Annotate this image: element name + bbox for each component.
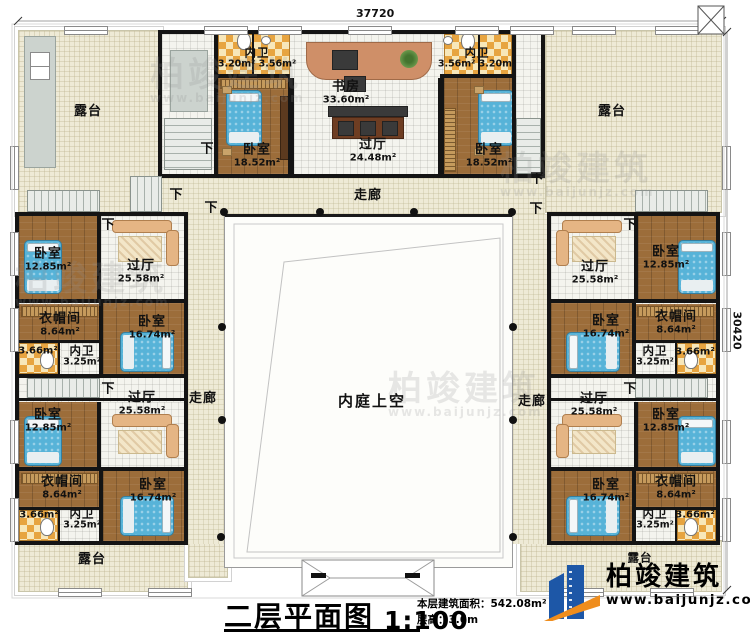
- room-label-terrace-top-left: 露台: [74, 105, 102, 119]
- window: [258, 26, 302, 35]
- room-area: 3.25m²: [636, 357, 674, 367]
- room-area: 25.58m²: [119, 406, 165, 417]
- room-area: 3.66m²: [19, 510, 58, 521]
- room-label-terrace-top-right: 露台: [598, 105, 626, 119]
- logo-tower-shape: [549, 573, 564, 619]
- room-area: 12.85m²: [25, 262, 71, 273]
- column-dot: [509, 533, 517, 541]
- nightstand: [222, 148, 232, 156]
- room-label-lw-lower-bath2: 3.66m²: [19, 510, 58, 521]
- room-label-study: 书房33.60m²: [323, 80, 369, 105]
- column-dot: [218, 323, 226, 331]
- room-name: 露台: [598, 105, 626, 119]
- window: [10, 498, 19, 542]
- computer-icon: [332, 50, 358, 70]
- bed-sheet: [481, 132, 511, 143]
- room-area: 3.66m²: [675, 347, 714, 358]
- stairs-down-label: 下: [623, 214, 636, 233]
- column-dot: [509, 323, 517, 331]
- room-name: 衣帽间: [655, 475, 697, 489]
- room-label-lw-lower-bedroom1: 卧室12.85m²: [25, 408, 71, 433]
- brand-logo: 柏竣建筑 www.baijunjz.com: [544, 563, 750, 623]
- room-label-rw-upper-hall: 过厅25.58m²: [572, 260, 618, 285]
- room-label-corridor-top: 走廊: [354, 189, 382, 203]
- room-label-corridor-left: 走廊: [189, 392, 217, 406]
- room-name: 书房: [323, 80, 369, 94]
- terrace-area: [545, 30, 722, 213]
- room-label-rw-lower-bath2: 3.66m²: [675, 510, 714, 521]
- window: [722, 420, 731, 464]
- wall: [58, 343, 60, 374]
- room-label-lw-upper-closet: 衣帽间8.64m²: [39, 312, 81, 337]
- stairs-down-label: 下: [101, 378, 114, 397]
- room-area: 8.64m²: [655, 490, 697, 501]
- room-name: 卧室: [643, 245, 689, 259]
- room-name: 卧室: [643, 408, 689, 422]
- room-area: 18.52m²: [234, 158, 280, 169]
- room-name: 露台: [74, 105, 102, 119]
- window: [572, 26, 616, 35]
- room-name: 卧室: [129, 315, 175, 329]
- stairs: [516, 118, 541, 174]
- bed-pillow: [162, 499, 171, 533]
- room-name: 卧室: [130, 478, 176, 492]
- room-label-lw-upper-bath: 内卫3.25m²: [63, 344, 101, 367]
- wall: [288, 78, 294, 174]
- room-name: 过厅: [119, 391, 165, 405]
- stairs: [635, 190, 708, 212]
- room-area: 16.74m²: [583, 329, 629, 340]
- room-label-rw-lower-closet: 衣帽间8.64m²: [655, 475, 697, 500]
- room-name: 走廊: [354, 189, 382, 203]
- column-dot: [217, 533, 225, 541]
- room-label-rw-lower-hall: 过厅25.58m²: [571, 392, 617, 417]
- room-label-lw-upper-bedroom1: 卧室12.85m²: [25, 247, 71, 272]
- bed-sheet: [681, 452, 713, 463]
- cabinet-seat: [360, 121, 376, 136]
- room-area: 25.58m²: [118, 274, 164, 285]
- nightstand: [474, 86, 484, 94]
- bed-sheet: [229, 132, 259, 143]
- room-label-rw-upper-closet: 衣帽间8.64m²: [655, 310, 697, 335]
- toilet: [684, 518, 698, 536]
- sofa: [112, 220, 172, 233]
- sink: [443, 36, 453, 45]
- room-name: 过厅: [571, 392, 617, 406]
- column-dot: [218, 416, 226, 424]
- room-label-lw-upper-bath2: 3.66m²: [18, 346, 57, 357]
- wall: [97, 402, 101, 467]
- dimension-top: 37720: [356, 7, 394, 20]
- floor-height-text: 层高：3.6m: [417, 613, 547, 629]
- stairs-down-label: 下: [169, 184, 182, 203]
- stairs: [130, 176, 162, 212]
- room-name: 内卫: [438, 46, 516, 59]
- plan-meta: 本层建筑面积：542.08m² 层高：3.6m: [417, 597, 547, 629]
- sofa: [556, 424, 569, 458]
- brand-url: www.baijunjz.com: [606, 592, 750, 608]
- stairs: [635, 378, 708, 398]
- room-name: 卧室: [25, 247, 71, 261]
- room-label-rw-upper-bath: 内卫3.25m²: [636, 344, 674, 367]
- room-label-bath-top-left: 内卫3.20m² 3.56m²: [218, 46, 296, 69]
- room-label-lw-lower-closet: 衣帽间8.64m²: [41, 475, 83, 500]
- room-area: 16.74m²: [129, 330, 175, 341]
- plant-icon: [400, 50, 418, 68]
- stairs-down-label: 下: [204, 197, 217, 216]
- room-area: 8.64m²: [39, 327, 81, 338]
- room-label-lw-lower-hall: 过厅25.58m²: [119, 391, 165, 416]
- room-name: 内卫: [636, 507, 674, 520]
- sofa: [556, 230, 569, 266]
- room-label-rw-lower-bath: 内卫3.25m²: [636, 507, 674, 530]
- room-name: 卧室: [583, 314, 629, 328]
- window: [10, 420, 19, 464]
- room-name: 内卫: [63, 507, 101, 520]
- stairs-down-label: 下: [200, 138, 213, 157]
- room-label-rw-upper-bedroom1: 卧室12.85m²: [643, 245, 689, 270]
- window: [64, 26, 108, 35]
- dimension-right: 30420: [731, 311, 744, 349]
- room-name: 卧室: [234, 143, 280, 157]
- room-area: 12.85m²: [643, 260, 689, 271]
- room-area: 16.74m²: [583, 493, 629, 504]
- window: [510, 26, 554, 35]
- floorplan-canvas: 37720 30420 二层平面图 1:100 本层建筑面积：542.08m² …: [0, 0, 750, 635]
- window: [455, 26, 499, 35]
- corridor-area: [188, 214, 224, 544]
- sofa: [562, 220, 622, 233]
- room-area: 3.20m² 3.56m²: [218, 59, 296, 69]
- room-name: 走廊: [518, 395, 546, 409]
- room-name: 露台: [78, 553, 106, 567]
- room-name: 卧室: [466, 143, 512, 157]
- room-label-bedroom-top-right: 卧室18.52m²: [466, 143, 512, 168]
- room-name: 过厅: [350, 138, 396, 152]
- room-area: 12.85m²: [25, 423, 71, 434]
- column-dot: [509, 416, 517, 424]
- room-area: 3.25m²: [63, 520, 101, 530]
- window: [348, 26, 392, 35]
- room-label-rw-lower-bedroom1: 卧室12.85m²: [643, 408, 689, 433]
- column-dot: [508, 208, 516, 216]
- stairs-down-label: 下: [101, 214, 114, 233]
- wall: [634, 402, 638, 467]
- bed-sheet: [123, 499, 134, 533]
- stairs-down-label: 下: [530, 168, 543, 187]
- room-area: 12.85m²: [643, 423, 689, 434]
- bed-sheet: [27, 452, 59, 463]
- room-area: 8.64m²: [655, 325, 697, 336]
- window: [58, 588, 102, 597]
- sink: [261, 36, 271, 45]
- bed-pillow: [229, 93, 259, 102]
- room-name: 衣帽间: [655, 310, 697, 324]
- window: [204, 26, 248, 35]
- room-label-lw-upper-bedroom2: 卧室16.74m²: [129, 315, 175, 340]
- bed-pillow: [481, 93, 511, 102]
- room-label-lw-lower-bedroom2: 卧室16.74m²: [130, 478, 176, 503]
- window: [722, 308, 731, 352]
- sofa: [166, 424, 179, 458]
- stairs: [27, 378, 100, 398]
- stairs: [27, 190, 100, 212]
- rug: [572, 236, 616, 262]
- room-label-rw-upper-bedroom2: 卧室16.74m²: [583, 314, 629, 339]
- floor-area-text: 本层建筑面积：542.08m²: [417, 597, 547, 613]
- bed-sheet: [606, 499, 617, 533]
- room-name: 过厅: [572, 260, 618, 274]
- bed-pillow: [569, 335, 578, 369]
- window: [10, 232, 19, 276]
- bed-sheet: [681, 280, 713, 291]
- room-name: 衣帽间: [41, 475, 83, 489]
- room-area: 3.25m²: [63, 357, 101, 367]
- stairs-down-label: 下: [623, 378, 636, 397]
- brand-logo-icon: [544, 563, 600, 623]
- room-area: 18.52m²: [466, 158, 512, 169]
- room-name: 走廊: [189, 392, 217, 406]
- room-area: 24.48m²: [350, 153, 396, 164]
- stair-landing: [30, 52, 50, 80]
- bed-sheet: [27, 280, 59, 291]
- room-label-hall-top: 过厅24.48m²: [350, 138, 396, 163]
- room-name: 衣帽间: [39, 312, 81, 326]
- window: [722, 146, 731, 190]
- corridor-area: [513, 214, 547, 544]
- nightstand: [222, 86, 232, 94]
- wall: [97, 216, 101, 299]
- column-dot: [220, 208, 228, 216]
- room-name: 内卫: [218, 46, 296, 59]
- room-label-corridor-right: 走廊: [518, 395, 546, 409]
- room-label-bedroom-top-left: 卧室18.52m²: [234, 143, 280, 168]
- bed-sheet: [606, 335, 617, 369]
- room-name: 内卫: [636, 344, 674, 357]
- terrace-area: [188, 540, 228, 578]
- stairwell-core: [170, 50, 208, 112]
- rug: [118, 430, 162, 454]
- room-name: 内庭上空: [338, 393, 406, 410]
- wardrobe-hatch: [444, 108, 456, 172]
- room-label-bath-top-right: 内卫3.56m² 3.20m²: [438, 46, 516, 69]
- rug: [572, 430, 616, 454]
- window: [655, 26, 699, 35]
- room-area: 25.58m²: [572, 275, 618, 286]
- room-label-lw-lower-bath: 内卫3.25m²: [63, 507, 101, 530]
- column-dot: [410, 208, 418, 216]
- window: [10, 146, 19, 190]
- room-area: 3.66m²: [675, 510, 714, 521]
- column-dot: [316, 208, 324, 216]
- wall: [438, 78, 444, 174]
- room-area: 33.60m²: [323, 95, 369, 106]
- wall: [440, 74, 512, 78]
- sofa: [166, 230, 179, 266]
- room-name: 内卫: [63, 344, 101, 357]
- room-area: 8.64m²: [41, 490, 83, 501]
- room-name: 卧室: [583, 478, 629, 492]
- room-label-terrace-bottom-left: 露台: [78, 553, 106, 567]
- room-area: 3.56m² 3.20m²: [438, 59, 516, 69]
- title-underline: [224, 629, 420, 632]
- wall: [218, 74, 290, 78]
- room-area: 3.66m²: [18, 346, 57, 357]
- room-area: 16.74m²: [130, 493, 176, 504]
- toilet: [40, 518, 54, 536]
- room-label-rw-lower-bedroom2: 卧室16.74m²: [583, 478, 629, 503]
- brand-text: 柏竣建筑 www.baijunjz.com: [606, 563, 750, 608]
- cabinet-seat: [382, 121, 398, 136]
- window: [148, 588, 192, 597]
- room-name: 过厅: [118, 259, 164, 273]
- cabinet-top: [328, 106, 408, 117]
- window: [722, 498, 731, 542]
- bed-pillow: [569, 499, 578, 533]
- room-label-courtyard: 内庭上空: [338, 393, 406, 410]
- brand-name: 柏竣建筑: [606, 563, 750, 592]
- stairs-down-label: 下: [529, 198, 542, 217]
- room-area: 25.58m²: [571, 407, 617, 418]
- room-name: 卧室: [25, 408, 71, 422]
- cabinet-seat: [338, 121, 354, 136]
- room-label-rw-upper-bath2: 3.66m²: [675, 347, 714, 358]
- room-label-lw-upper-hall: 过厅25.58m²: [118, 259, 164, 284]
- room-area: 3.25m²: [636, 520, 674, 530]
- window: [722, 232, 731, 276]
